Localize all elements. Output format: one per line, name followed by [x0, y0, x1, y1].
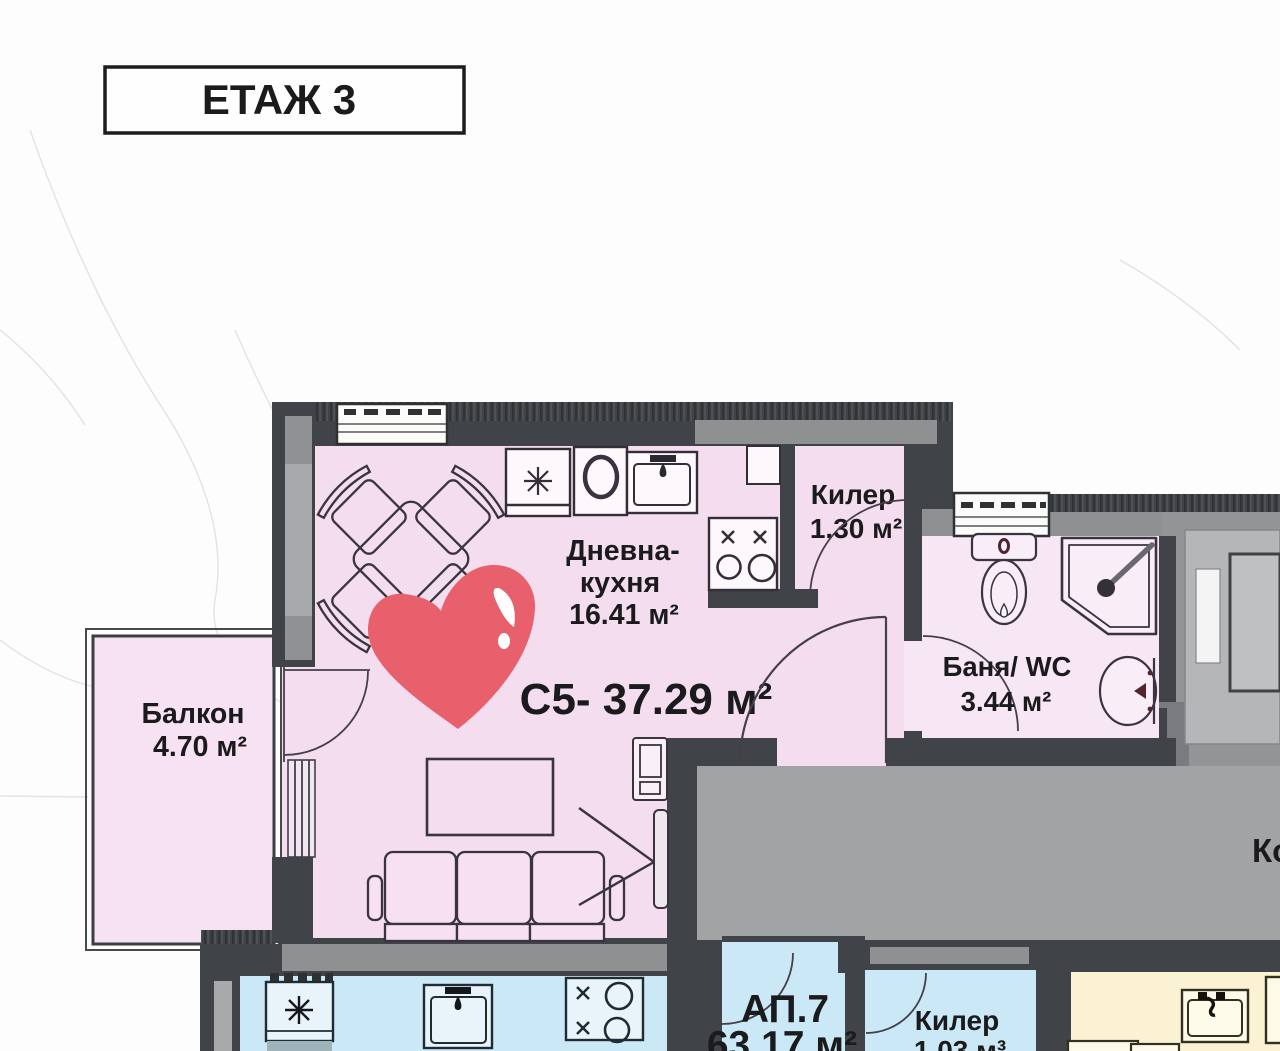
svg-text:1.03 м³: 1.03 м³ — [914, 1035, 1006, 1051]
svg-text:63.17 м²: 63.17 м² — [707, 1024, 857, 1051]
svg-text:Килер: Килер — [915, 1005, 999, 1036]
svg-text:Килер: Килер — [811, 479, 895, 510]
svg-text:Балкон: Балкон — [142, 698, 245, 730]
svg-text:С5- 37.29 м²: С5- 37.29 м² — [520, 675, 773, 724]
svg-text:4.70 м²: 4.70 м² — [153, 731, 247, 763]
svg-text:Дневна-: Дневна- — [566, 535, 679, 567]
svg-text:3.44 м²: 3.44 м² — [961, 686, 1052, 717]
svg-text:Баня/ WC: Баня/ WC — [943, 651, 1072, 682]
svg-text:1.30 м²: 1.30 м² — [810, 513, 902, 544]
svg-text:16.41 м²: 16.41 м² — [569, 599, 679, 631]
svg-text:кухня: кухня — [580, 567, 660, 599]
svg-text:ЕТАЖ 3: ЕТАЖ 3 — [202, 76, 356, 123]
svg-text:Коридор: Коридор — [1252, 832, 1280, 869]
